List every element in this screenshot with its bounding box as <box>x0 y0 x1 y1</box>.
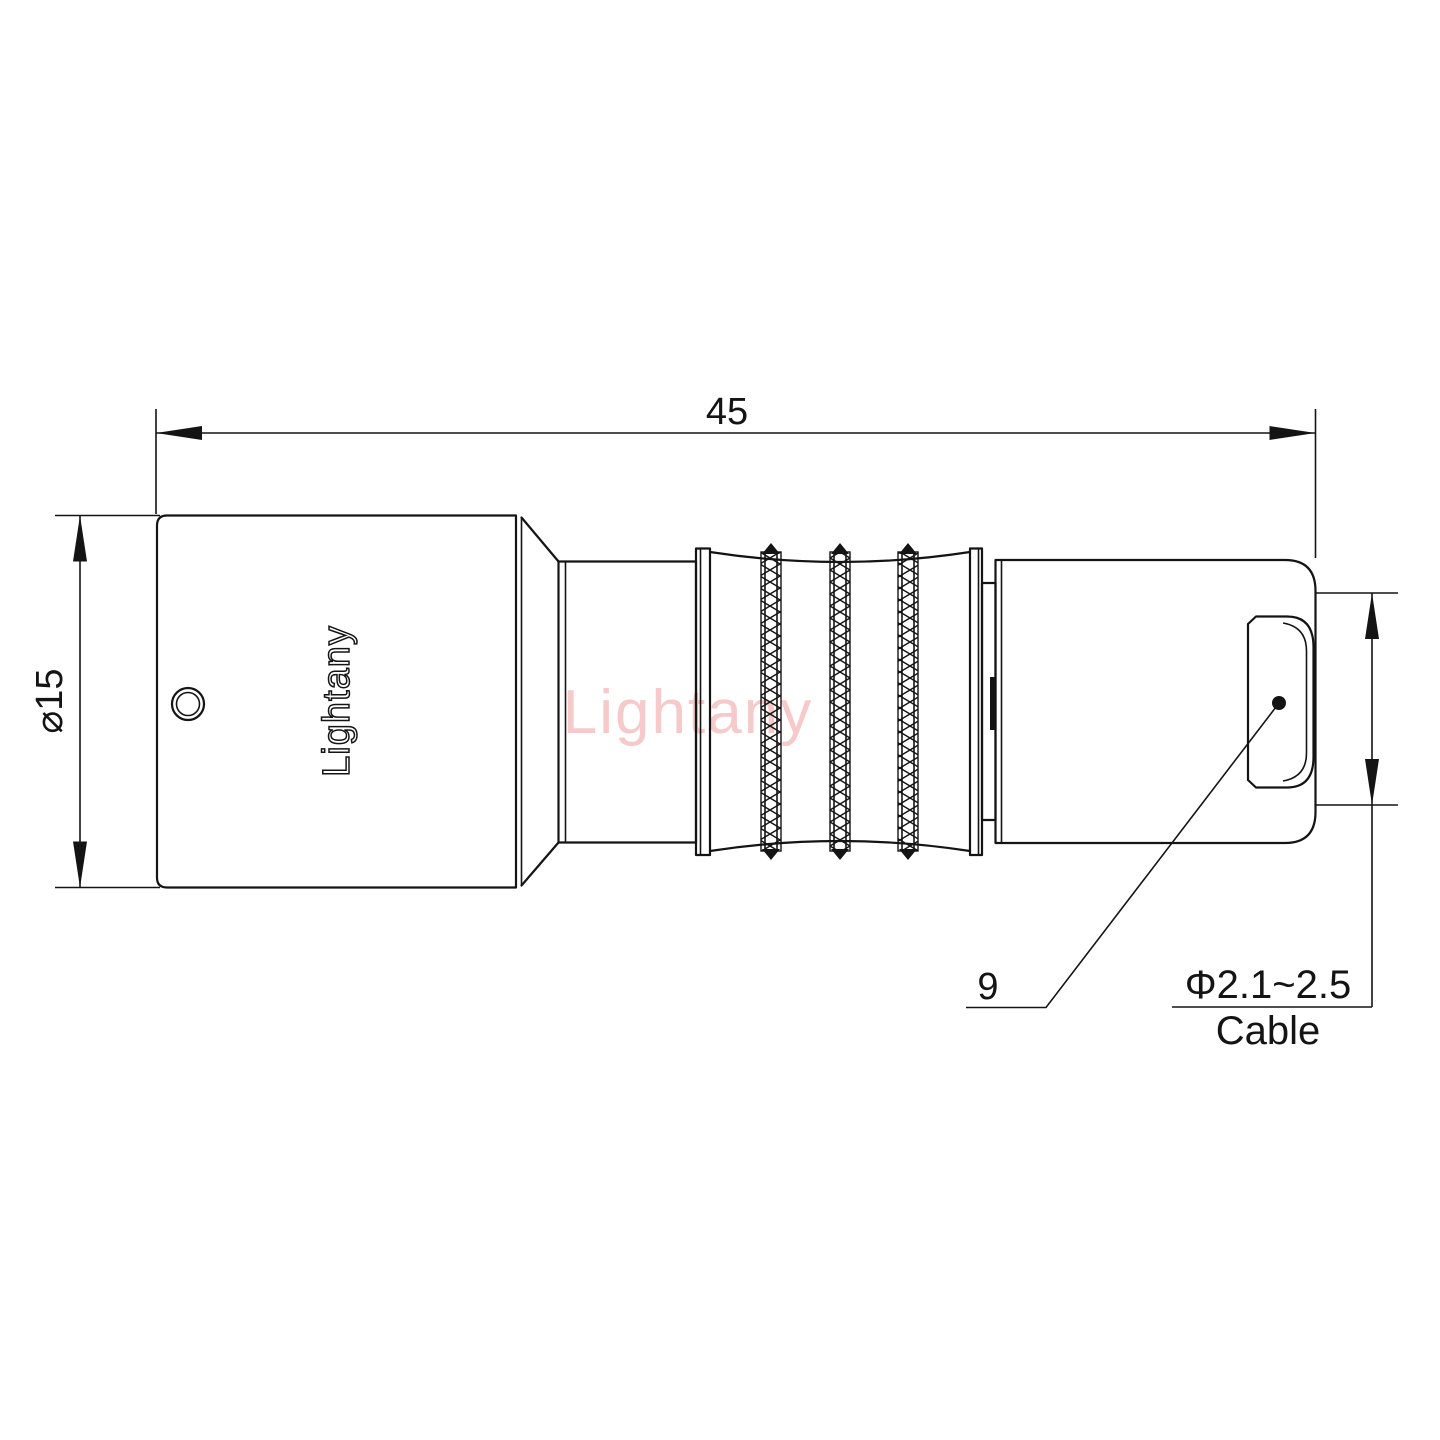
dim-cable-arrow-top <box>1365 593 1379 639</box>
rear-cylinder-outline <box>996 560 1316 843</box>
side-hole-inner <box>177 693 200 716</box>
taper-bottom-edge <box>522 843 559 886</box>
sleeve-section <box>982 583 996 820</box>
cable-boot <box>1248 617 1314 788</box>
front-body: Lightany <box>157 516 522 888</box>
knurl-band-1 <box>761 543 781 860</box>
dim15-label: ⌀15 <box>29 668 71 733</box>
connector-technical-drawing: Lightany Lightany <box>0 0 1440 1440</box>
dim-cable-entry: Φ2.1~2.5 Cable <box>1172 593 1398 1053</box>
grip-right-flange-outline <box>970 549 982 856</box>
dim15-arrow-bottom <box>73 842 87 888</box>
dim45-arrow-left <box>156 426 202 440</box>
dim45-arrow-right <box>1270 426 1316 440</box>
knurl-band-3 <box>898 543 918 860</box>
engraved-brand-text: Lightany <box>316 625 358 777</box>
taper-section <box>522 518 559 886</box>
knurl-band-2 <box>830 543 850 860</box>
dim-cable-arrow-bottom <box>1365 759 1379 805</box>
cable-boot-inner-line <box>1283 623 1307 781</box>
cable-range-label: Φ2.1~2.5 <box>1185 963 1351 1007</box>
taper-top-edge <box>522 518 559 562</box>
callout-leader-dot <box>1272 696 1286 710</box>
drawing-canvas: Lightany Lightany <box>0 0 1440 1440</box>
dim-overall-length: 45 <box>156 391 1316 558</box>
rear-cylinder <box>996 560 1316 843</box>
callout-label: 9 <box>977 966 998 1008</box>
dim45-label: 45 <box>706 391 748 433</box>
grip-right-flange <box>970 549 982 856</box>
cable-word-label: Cable <box>1216 1009 1321 1053</box>
dim15-arrow-top <box>73 516 87 562</box>
dim-body-diameter: ⌀15 <box>29 516 160 888</box>
